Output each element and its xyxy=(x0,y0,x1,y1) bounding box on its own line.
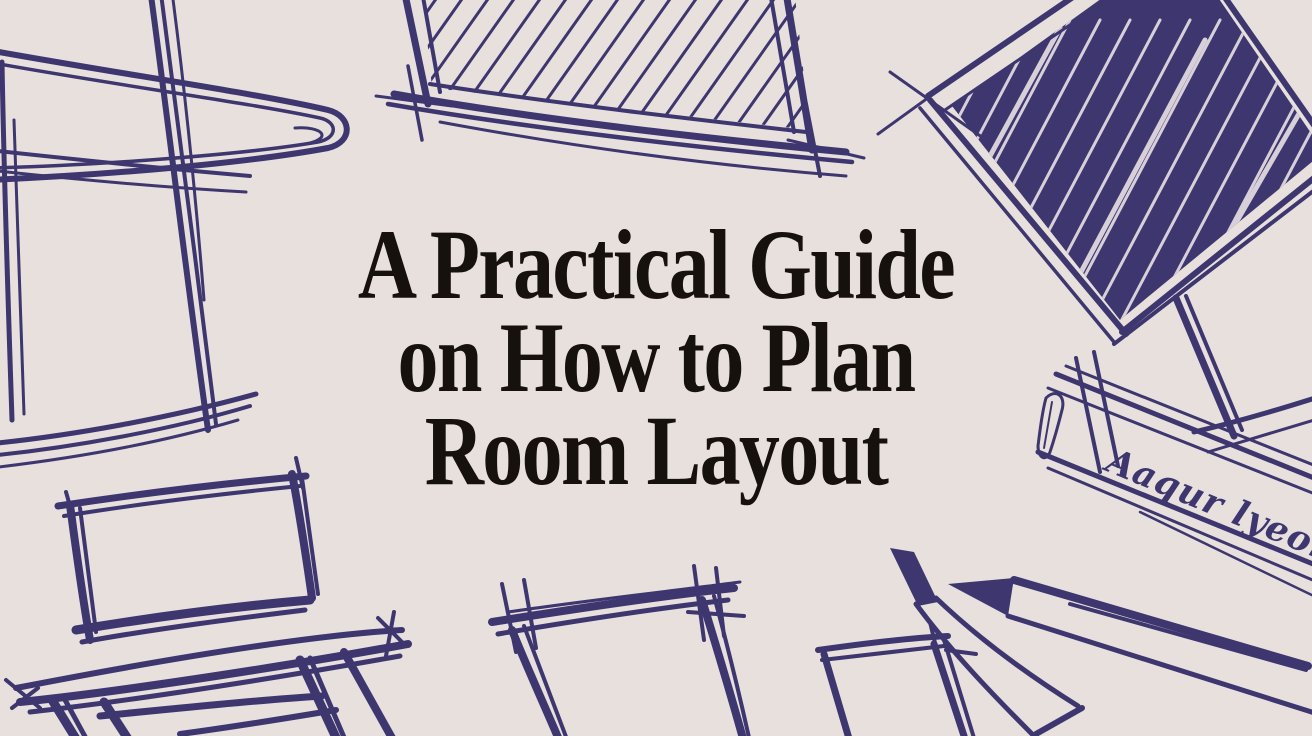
picture-frame-bottom-right-sketch xyxy=(818,622,976,736)
title-block: A Practical Guide on How to Plan Room La… xyxy=(0,218,1312,497)
title-line-3: Room Layout xyxy=(118,404,1194,497)
hatched-picture-frame-sketch xyxy=(340,0,928,176)
page-title: A Practical Guide on How to Plan Room La… xyxy=(118,218,1194,497)
picture-frame-bottom-center-sketch xyxy=(492,566,750,736)
title-line-1: A Practical Guide xyxy=(118,218,1194,311)
chair-bottom-left-sketch xyxy=(6,458,408,736)
title-line-2: on How to Plan xyxy=(118,311,1194,404)
cover-illustration: Aaqur lyeored xyxy=(0,0,1312,736)
